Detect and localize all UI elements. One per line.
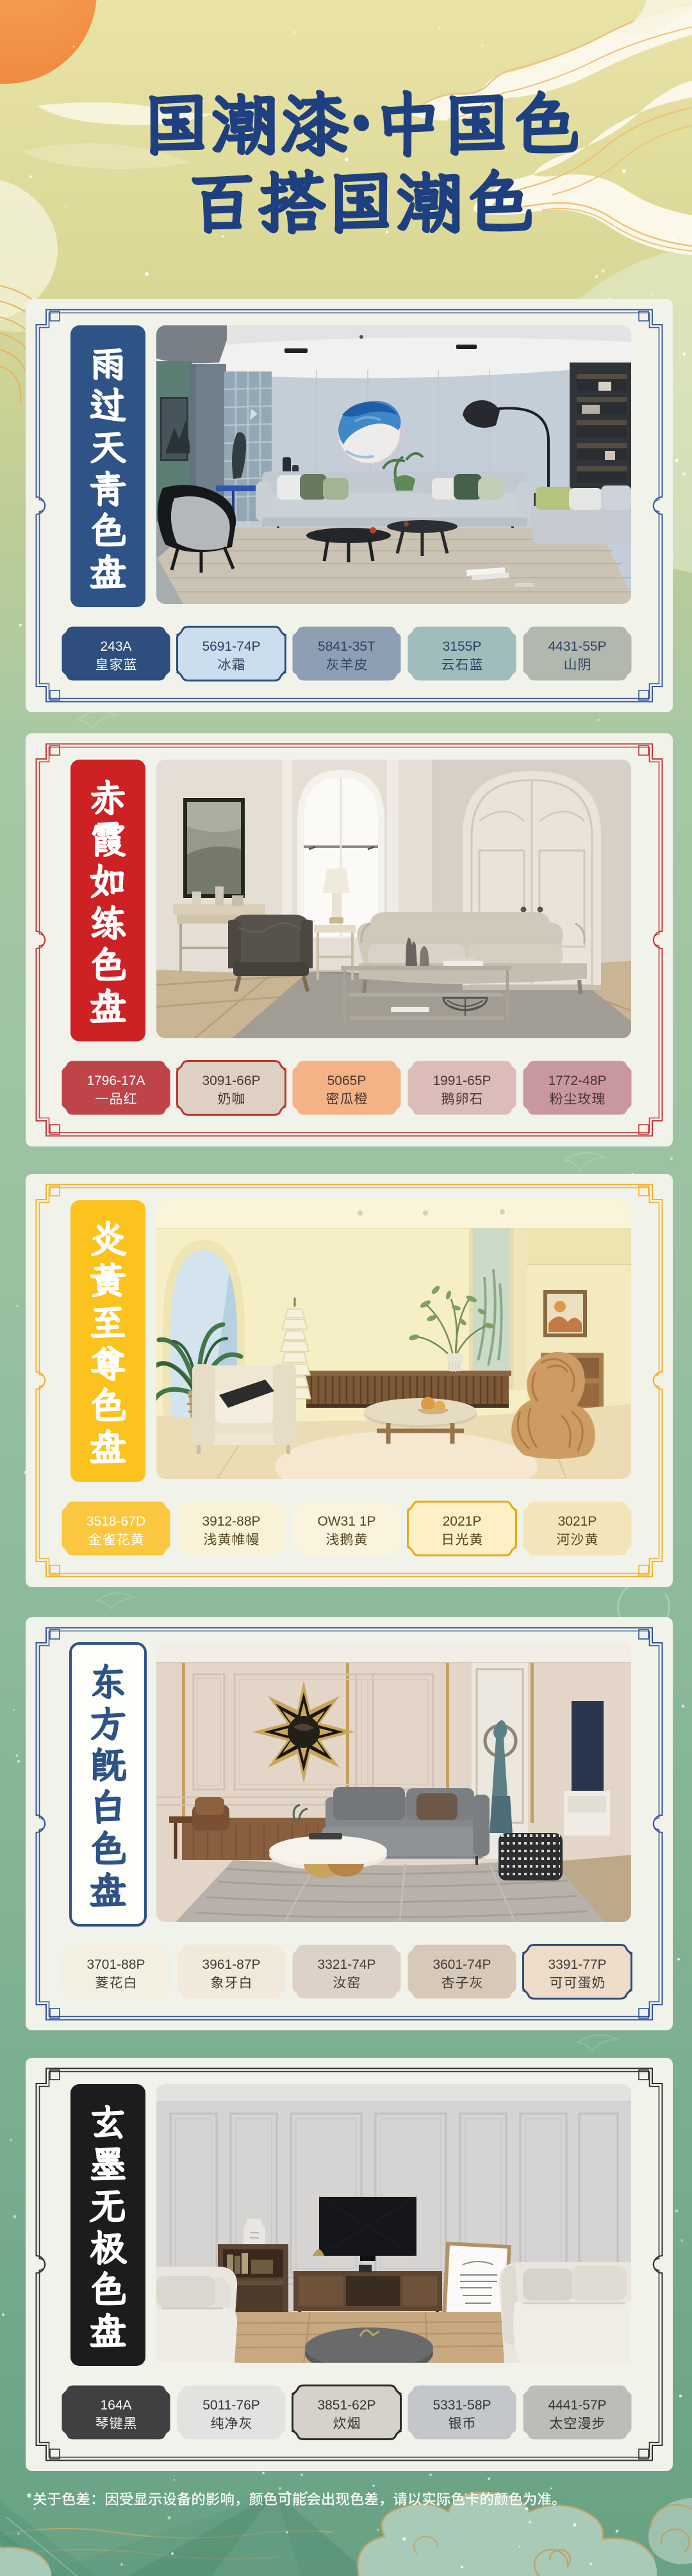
svg-text:5011-76P: 5011-76P (202, 2398, 260, 2413)
svg-text:3321-74P: 3321-74P (317, 1957, 375, 1972)
svg-text:3701-88P: 3701-88P (86, 1957, 145, 1972)
svg-text:3021P: 3021P (558, 1514, 597, 1529)
svg-text:3391-77P: 3391-77P (548, 1957, 606, 1972)
svg-text:5065P: 5065P (327, 1073, 367, 1088)
svg-text:5331-58P: 5331-58P (432, 2398, 491, 2413)
svg-text:5691-74P: 5691-74P (202, 639, 260, 654)
svg-text:1796-17A: 1796-17A (86, 1073, 145, 1088)
svg-text:3851-62P: 3851-62P (317, 2398, 375, 2413)
svg-text:OW31 1P: OW31 1P (317, 1514, 375, 1529)
svg-text:1772-48P: 1772-48P (548, 1073, 606, 1088)
svg-text:3091-66P: 3091-66P (202, 1073, 260, 1088)
svg-text:1991-65P: 1991-65P (432, 1073, 491, 1088)
svg-text:243A: 243A (100, 639, 131, 654)
svg-text:4431-55P: 4431-55P (548, 639, 606, 654)
svg-text:4441-57P: 4441-57P (548, 2398, 606, 2413)
svg-text:3601-74P: 3601-74P (432, 1957, 491, 1972)
svg-text:3518-67D: 3518-67D (86, 1514, 145, 1529)
svg-text:164A: 164A (100, 2398, 131, 2413)
svg-text:3961-87P: 3961-87P (202, 1957, 260, 1972)
svg-text:3912-88P: 3912-88P (202, 1514, 260, 1529)
svg-text:5841-35T: 5841-35T (318, 639, 375, 654)
svg-text:3155P: 3155P (443, 639, 482, 654)
svg-text:2021P: 2021P (443, 1514, 482, 1529)
